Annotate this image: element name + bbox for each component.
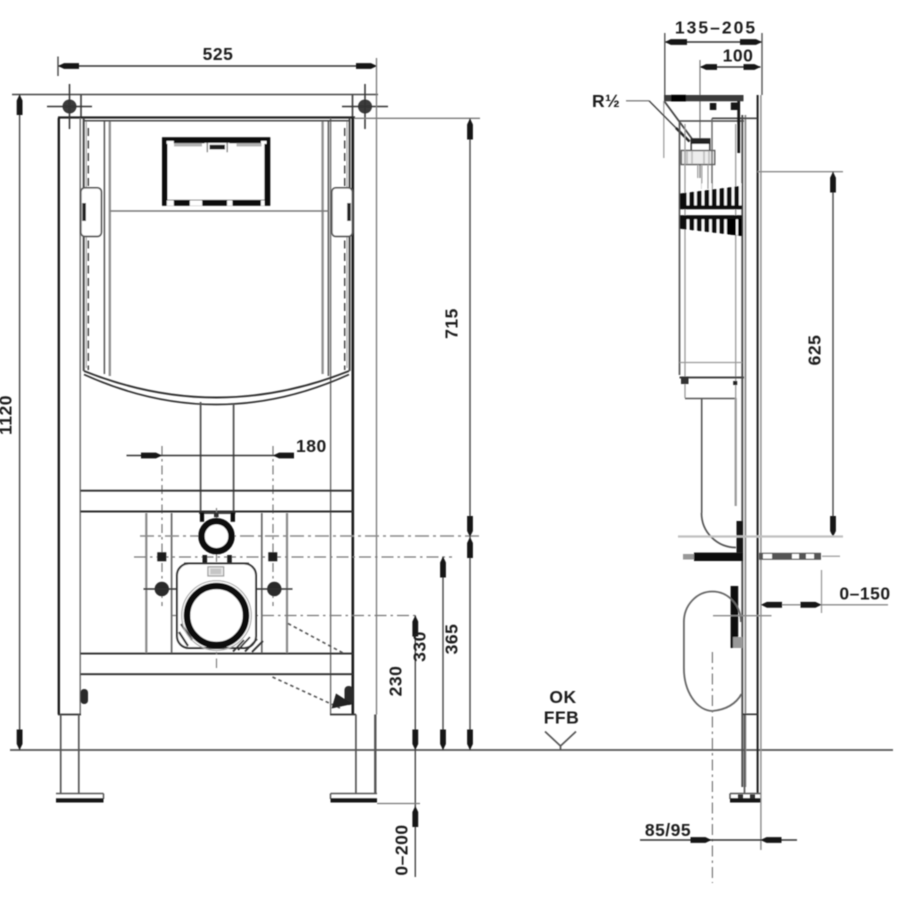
svg-text:715: 715	[442, 308, 462, 339]
svg-text:525: 525	[203, 44, 234, 64]
svg-text:625: 625	[805, 335, 825, 366]
svg-text:230: 230	[386, 666, 406, 697]
svg-text:0–150: 0–150	[839, 584, 890, 604]
svg-text:135–205: 135–205	[675, 18, 757, 38]
svg-text:100: 100	[723, 46, 754, 66]
svg-text:85/95: 85/95	[645, 820, 691, 840]
svg-text:180: 180	[296, 436, 327, 456]
svg-text:FFB: FFB	[544, 708, 580, 728]
svg-text:OK: OK	[549, 687, 576, 707]
svg-text:330: 330	[410, 631, 430, 662]
svg-text:R½: R½	[592, 91, 620, 111]
svg-text:365: 365	[442, 624, 462, 655]
svg-text:1120: 1120	[0, 395, 16, 435]
svg-text:0–200: 0–200	[392, 824, 412, 875]
